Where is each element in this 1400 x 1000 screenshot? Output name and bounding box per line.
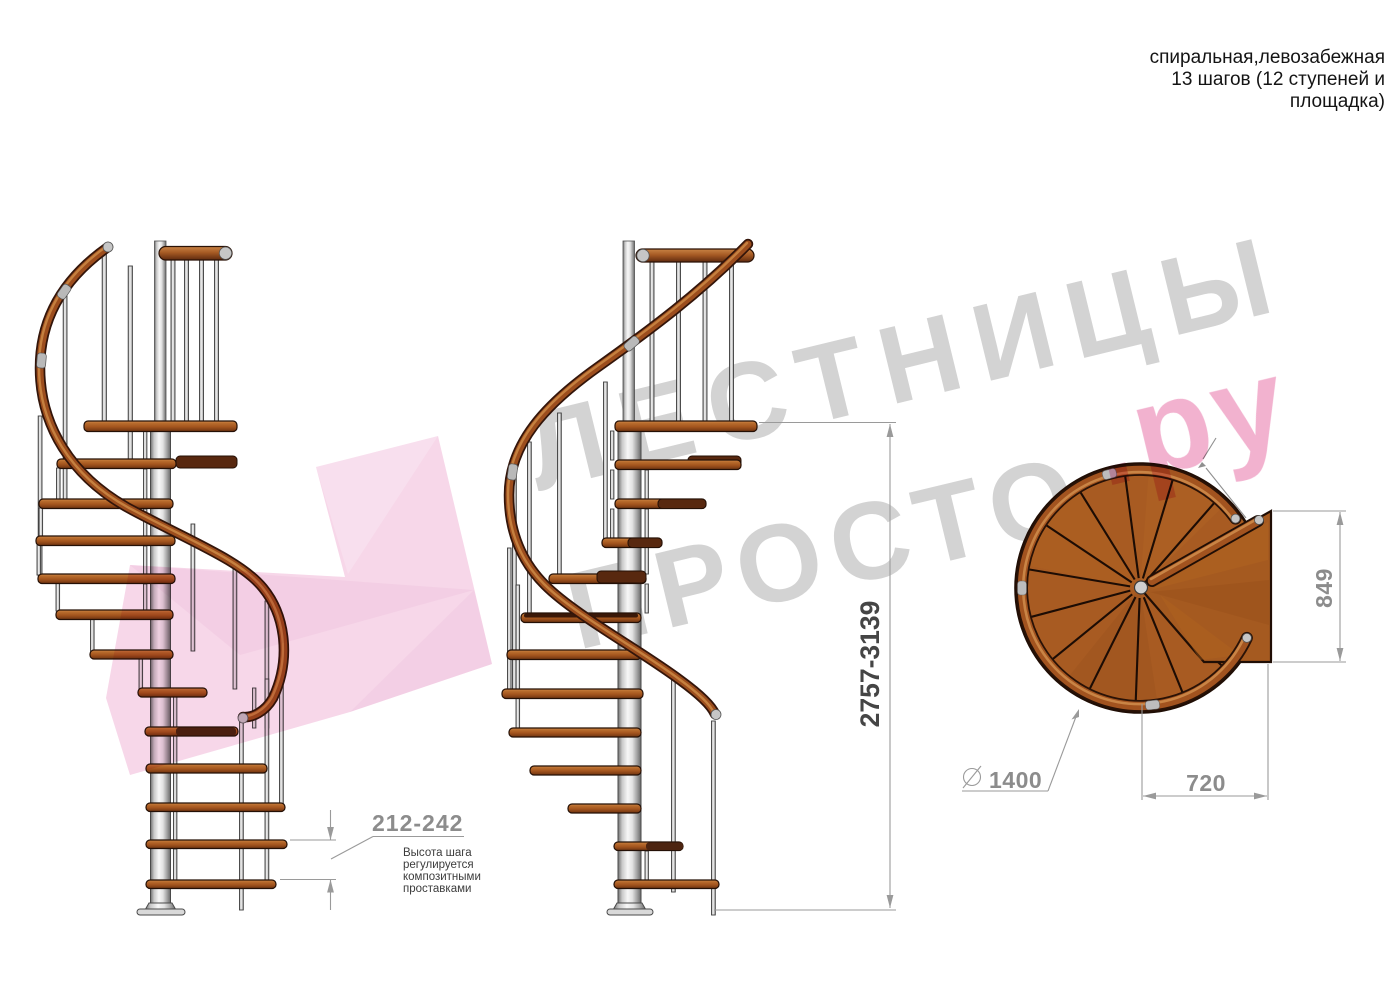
svg-text:2757-3139: 2757-3139	[855, 601, 885, 728]
svg-text:композитными: композитными	[403, 871, 481, 883]
svg-text:1400: 1400	[989, 767, 1042, 793]
svg-text:720: 720	[1186, 770, 1226, 796]
svg-text:Высота шага: Высота шага	[403, 847, 472, 859]
svg-text:212-242: 212-242	[372, 810, 463, 836]
svg-text:849: 849	[1311, 568, 1337, 608]
svg-text:спиральная,левозабежная: спиральная,левозабежная	[1150, 47, 1385, 68]
svg-text:площадка): площадка)	[1290, 91, 1385, 112]
svg-text:13 шагов (12 ступеней и: 13 шагов (12 ступеней и	[1171, 69, 1385, 90]
svg-text:регулируется: регулируется	[403, 859, 474, 871]
svg-text:проставками: проставками	[403, 883, 471, 895]
